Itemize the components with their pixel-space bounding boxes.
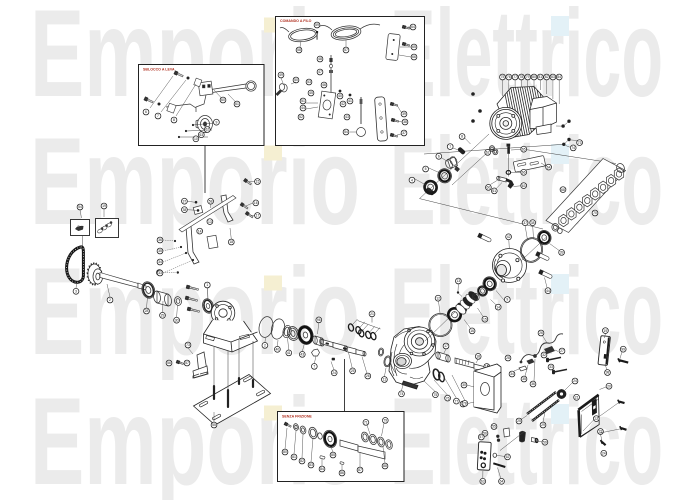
- svg-text:SENZA FRIZIONE: SENZA FRIZIONE: [282, 415, 312, 419]
- svg-text:10: 10: [194, 137, 198, 141]
- svg-text:78: 78: [463, 402, 467, 406]
- svg-text:12: 12: [436, 296, 440, 300]
- svg-text:76: 76: [507, 75, 511, 79]
- svg-text:26: 26: [539, 331, 543, 335]
- svg-text:60: 60: [487, 186, 491, 190]
- svg-text:17: 17: [444, 344, 448, 348]
- svg-text:44: 44: [546, 289, 550, 293]
- svg-text:28: 28: [506, 356, 510, 360]
- svg-text:13: 13: [208, 220, 212, 224]
- svg-text:62: 62: [486, 151, 490, 155]
- svg-text:63: 63: [481, 479, 485, 483]
- svg-text:47: 47: [318, 70, 322, 74]
- svg-text:66: 66: [522, 170, 526, 174]
- svg-text:86: 86: [340, 471, 344, 475]
- svg-text:98: 98: [606, 371, 610, 375]
- svg-text:80: 80: [283, 450, 287, 454]
- svg-text:39: 39: [560, 251, 564, 255]
- svg-text:68: 68: [561, 188, 565, 192]
- svg-text:74: 74: [400, 392, 404, 396]
- svg-text:35: 35: [522, 377, 526, 381]
- svg-text:63: 63: [199, 133, 203, 137]
- svg-text:41: 41: [287, 351, 291, 355]
- svg-text:26: 26: [366, 374, 370, 378]
- svg-text:17: 17: [256, 214, 260, 218]
- svg-text:81: 81: [292, 455, 296, 459]
- svg-text:64: 64: [411, 25, 415, 29]
- svg-text:25: 25: [351, 369, 355, 373]
- svg-text:80: 80: [532, 75, 536, 79]
- svg-text:71: 71: [364, 421, 368, 425]
- svg-text:41: 41: [348, 99, 352, 103]
- svg-text:49: 49: [279, 73, 283, 77]
- svg-text:51: 51: [301, 99, 305, 103]
- svg-text:96: 96: [317, 318, 321, 322]
- svg-text:34: 34: [510, 372, 514, 376]
- svg-text:Elettrico: Elettrico: [390, 373, 663, 500]
- svg-text:55: 55: [492, 425, 496, 429]
- svg-text:9: 9: [215, 120, 217, 124]
- svg-text:77: 77: [513, 75, 517, 79]
- svg-text:45: 45: [309, 91, 313, 95]
- svg-text:73: 73: [186, 343, 190, 347]
- svg-text:29: 29: [161, 313, 165, 317]
- svg-text:83: 83: [309, 463, 313, 467]
- svg-text:21: 21: [370, 312, 374, 316]
- svg-text:81: 81: [538, 75, 542, 79]
- svg-text:66: 66: [412, 55, 416, 59]
- svg-text:27: 27: [560, 349, 564, 353]
- svg-text:52: 52: [299, 115, 303, 119]
- svg-text:24: 24: [332, 371, 336, 375]
- svg-text:33: 33: [549, 365, 553, 369]
- svg-text:78: 78: [520, 75, 524, 79]
- svg-text:61: 61: [235, 102, 239, 106]
- svg-text:35: 35: [158, 249, 162, 253]
- svg-text:13: 13: [457, 279, 461, 283]
- svg-text:64: 64: [500, 479, 504, 483]
- svg-text:85: 85: [331, 453, 335, 457]
- svg-text:32: 32: [542, 353, 546, 357]
- svg-text:88: 88: [383, 464, 387, 468]
- svg-text:50: 50: [294, 78, 298, 82]
- svg-text:43: 43: [300, 353, 304, 357]
- svg-text:29: 29: [541, 423, 545, 427]
- svg-text:19: 19: [102, 204, 106, 208]
- svg-text:77: 77: [455, 399, 459, 403]
- svg-text:55: 55: [212, 423, 216, 427]
- svg-text:43: 43: [345, 115, 349, 119]
- svg-text:62: 62: [506, 455, 510, 459]
- svg-text:24: 24: [602, 451, 606, 455]
- svg-text:38: 38: [531, 221, 535, 225]
- svg-text:36: 36: [531, 382, 535, 386]
- svg-text:57: 57: [344, 48, 348, 52]
- svg-text:75: 75: [501, 75, 505, 79]
- svg-text:16: 16: [254, 201, 258, 205]
- svg-text:61: 61: [492, 189, 496, 193]
- svg-text:42: 42: [341, 102, 345, 106]
- svg-text:40: 40: [276, 347, 280, 351]
- svg-text:58: 58: [297, 48, 301, 52]
- svg-text:34: 34: [158, 260, 162, 264]
- svg-text:24: 24: [573, 379, 577, 383]
- svg-text:54: 54: [78, 205, 82, 209]
- svg-text:8: 8: [461, 135, 463, 139]
- svg-text:37: 37: [402, 131, 406, 135]
- svg-text:33: 33: [158, 271, 162, 275]
- svg-text:38: 38: [403, 120, 407, 124]
- svg-text:36: 36: [158, 238, 162, 242]
- svg-text:30: 30: [175, 318, 179, 322]
- svg-text:84: 84: [557, 75, 561, 79]
- svg-text:70: 70: [593, 211, 597, 215]
- svg-text:59: 59: [543, 440, 547, 444]
- svg-text:7: 7: [449, 145, 451, 149]
- svg-text:25: 25: [517, 419, 521, 423]
- svg-text:40: 40: [338, 94, 342, 98]
- svg-text:37: 37: [523, 221, 527, 225]
- svg-text:38: 38: [183, 208, 187, 212]
- svg-text:14: 14: [198, 229, 202, 233]
- svg-text:75: 75: [434, 393, 438, 397]
- svg-text:76: 76: [446, 396, 450, 400]
- svg-text:6: 6: [145, 110, 147, 114]
- svg-text:82: 82: [545, 75, 549, 79]
- svg-text:6: 6: [438, 154, 440, 158]
- svg-text:SBLOCCO A LEVA: SBLOCCO A LEVA: [143, 68, 175, 72]
- svg-text:54: 54: [344, 130, 348, 134]
- svg-text:4: 4: [411, 178, 413, 182]
- svg-text:1: 1: [206, 283, 208, 287]
- svg-text:87: 87: [358, 468, 362, 472]
- svg-text:57: 57: [185, 361, 189, 365]
- svg-text:30: 30: [462, 383, 466, 387]
- svg-text:16: 16: [470, 329, 474, 333]
- svg-text:15: 15: [256, 180, 260, 184]
- svg-text:58: 58: [209, 199, 213, 203]
- svg-text:COMANDO A FILO: COMANDO A FILO: [280, 19, 312, 23]
- svg-text:20: 20: [607, 384, 611, 388]
- svg-text:65: 65: [522, 147, 526, 151]
- svg-text:44: 44: [301, 106, 305, 110]
- svg-text:3: 3: [75, 289, 77, 293]
- svg-text:83: 83: [551, 75, 555, 79]
- svg-text:2: 2: [109, 298, 111, 302]
- svg-text:62: 62: [205, 128, 209, 132]
- svg-text:37: 37: [183, 199, 187, 203]
- svg-text:56: 56: [167, 361, 171, 365]
- svg-text:59: 59: [315, 23, 319, 27]
- svg-text:7: 7: [157, 114, 159, 118]
- svg-text:18: 18: [476, 355, 480, 359]
- svg-text:64: 64: [547, 165, 551, 169]
- svg-text:8: 8: [173, 118, 175, 122]
- svg-text:28: 28: [145, 309, 149, 313]
- svg-text:21: 21: [575, 395, 579, 399]
- svg-text:48: 48: [318, 57, 322, 61]
- svg-text:79: 79: [526, 75, 530, 79]
- svg-text:73: 73: [578, 141, 582, 145]
- svg-text:9: 9: [506, 298, 508, 302]
- svg-text:5: 5: [425, 167, 427, 171]
- svg-text:60: 60: [221, 98, 225, 102]
- svg-text:18: 18: [229, 240, 233, 244]
- svg-text:7: 7: [313, 365, 315, 369]
- svg-text:2: 2: [264, 344, 266, 348]
- svg-text:57: 57: [479, 435, 483, 439]
- svg-text:11: 11: [383, 378, 387, 382]
- svg-text:63: 63: [522, 184, 526, 188]
- svg-text:46: 46: [322, 83, 326, 87]
- svg-text:84: 84: [320, 467, 324, 471]
- svg-text:19: 19: [604, 329, 608, 333]
- svg-text:74: 74: [571, 146, 575, 150]
- svg-text:65: 65: [412, 45, 416, 49]
- svg-text:14: 14: [496, 305, 500, 309]
- svg-text:42: 42: [507, 235, 511, 239]
- svg-text:53: 53: [307, 80, 311, 84]
- svg-text:99: 99: [621, 347, 625, 351]
- svg-text:79: 79: [383, 419, 387, 423]
- svg-text:15: 15: [483, 317, 487, 321]
- svg-text:39: 39: [402, 112, 406, 116]
- svg-text:82: 82: [300, 459, 304, 463]
